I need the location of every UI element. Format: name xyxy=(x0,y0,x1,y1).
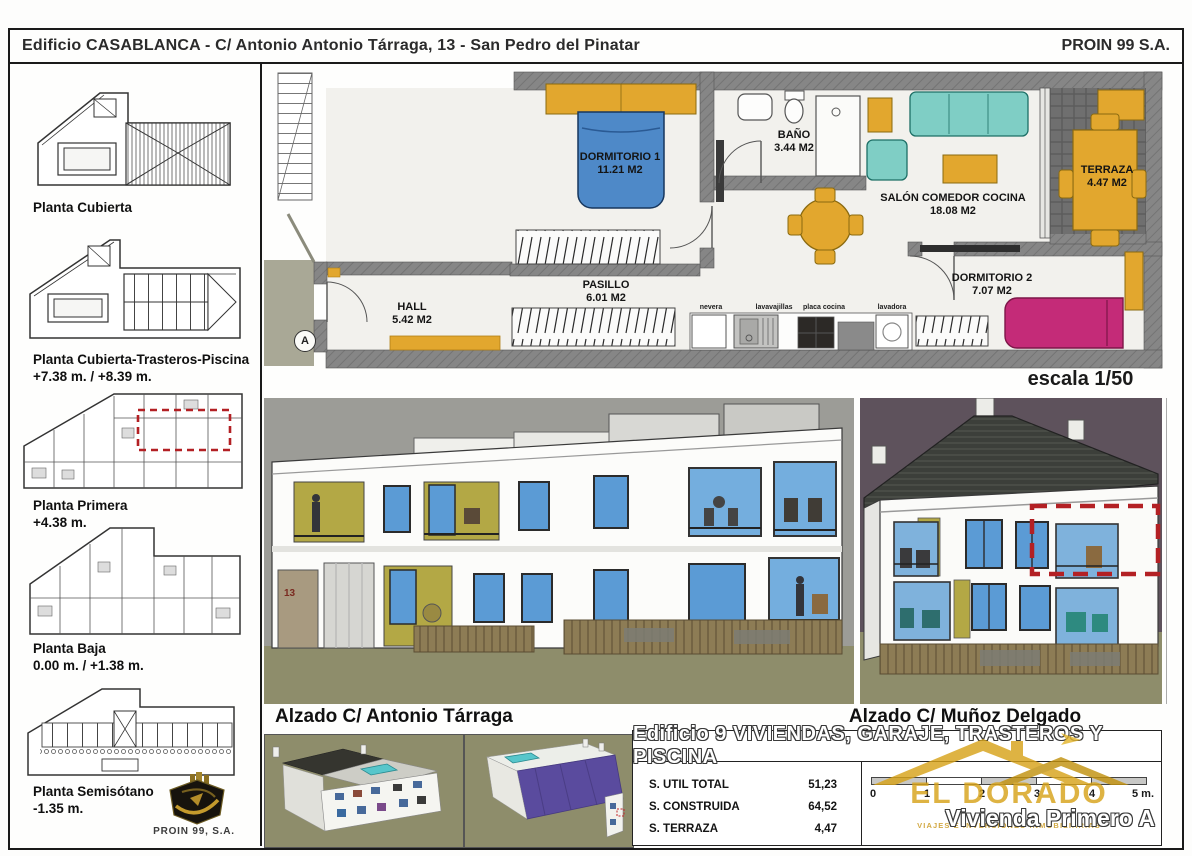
scale-tick: 0 xyxy=(870,788,876,800)
sidebar-item-planta-baja: Planta Baja xyxy=(33,641,106,656)
table-row-value: 51,23 xyxy=(773,779,837,791)
room-label-pasillo: PASILLO 6.01 M2 xyxy=(583,279,630,305)
sidebar-item-planta-primera: Planta Primera xyxy=(33,498,128,513)
table-row-label: S. TERRAZA xyxy=(649,823,718,835)
appliance-label-lavavajillas: lavavajillas xyxy=(756,304,793,311)
room-label-salon-comedor-cocina: SALÓN COMEDOR COCINA 18.08 M2 xyxy=(880,192,1025,218)
room-label-dormitorio-2: DORMITORIO 2 7.07 M2 xyxy=(952,272,1032,298)
table-row-label: S. CONSTRUIDA xyxy=(649,801,740,813)
sidebar-item-planta-baja-level: 0.00 m. / +1.38 m. xyxy=(33,658,144,673)
elevation-munoz-delgado xyxy=(860,398,1162,704)
elevation-antonio-tarraga: 13 xyxy=(264,398,854,704)
room-label-terraza: TERRAZA 4.47 M2 xyxy=(1081,164,1134,190)
planta-primera-thumbnail xyxy=(18,388,248,492)
margin-rule xyxy=(1166,398,1167,704)
scale-segment xyxy=(926,777,982,785)
planta-cubierta-thumbnail xyxy=(30,85,240,193)
title-block-header: Edificio CASABLANCA - C/ Antonio Antonio… xyxy=(10,30,1182,64)
document-page: Edificio CASABLANCA - C/ Antonio Antonio… xyxy=(0,0,1192,856)
scale-tick: 4 xyxy=(1089,788,1095,800)
scale-note: escala 1/50 xyxy=(998,368,1163,391)
table-row-value: 64,52 xyxy=(773,801,837,813)
table-row-value: 4,47 xyxy=(773,823,837,835)
sidebar-item-planta-cubierta-trasteros: Planta Cubierta-Trasteros-Piscina xyxy=(33,352,249,367)
scale-segment xyxy=(1091,777,1147,785)
room-label-bano: BAÑO 3.44 M2 xyxy=(774,129,814,155)
floor-plans-sidebar: Planta Cubierta Planta Cubierta-Trastero… xyxy=(10,64,262,846)
sidebar-item-planta-semisotano-level: -1.35 m. xyxy=(33,801,83,816)
proin-logo-text: PROIN 99, S.A. xyxy=(138,826,250,837)
room-label-dormitorio-1: DORMITORIO 1 11.21 M2 xyxy=(580,151,660,177)
render-aerial-view-1 xyxy=(264,734,464,848)
scale-tick: 5 m. xyxy=(1132,788,1154,800)
sheet-frame: Edificio CASABLANCA - C/ Antonio Antonio… xyxy=(8,28,1184,850)
sheet-title: Edificio CASABLANCA - C/ Antonio Antonio… xyxy=(22,37,640,55)
elevation-left-label: Alzado C/ Antonio Tárraga xyxy=(275,706,513,728)
graphic-scale-bar: 0 1 2 3 4 5 m. xyxy=(871,777,1151,803)
proin-logo-icon xyxy=(152,772,242,826)
apartment-floor-plan: DORMITORIO 1 11.21 M2 BAÑO 3.44 M2 SALÓN… xyxy=(264,64,1182,398)
appliance-label-nevera: nevera xyxy=(700,304,723,311)
project-title: Edificio 9 VIVIENDAS, GARAJE, TRASTEROS … xyxy=(633,731,1161,762)
table-row-label: S. UTIL TOTAL xyxy=(649,779,729,791)
sidebar-item-planta-semisotano: Planta Semisótano xyxy=(33,784,154,799)
appliance-label-placa-cocina: placa cocina xyxy=(803,304,845,311)
planta-baja-thumbnail xyxy=(24,522,246,638)
scale-tick: 1 xyxy=(924,788,930,800)
appliance-label-lavadora: lavadora xyxy=(878,304,907,311)
scale-segment xyxy=(871,777,927,785)
planta-cubierta-trasteros-piscina-thumbnail xyxy=(22,232,250,346)
summary-panel: Edificio 9 VIVIENDAS, GARAJE, TRASTEROS … xyxy=(632,730,1162,846)
scale-segment xyxy=(1036,777,1092,785)
planta-semisotano-thumbnail xyxy=(22,685,240,779)
door-number: 13 xyxy=(284,588,296,599)
scale-tick: 2 xyxy=(979,788,985,800)
sidebar-item-planta-cubierta-trasteros-level: +7.38 m. / +8.39 m. xyxy=(33,369,152,384)
section-marker-a: A xyxy=(294,330,316,352)
render-aerial-view-2 xyxy=(464,734,634,848)
sidebar-item-planta-cubierta: Planta Cubierta xyxy=(33,200,132,215)
unit-name: Vivienda Primero A xyxy=(903,805,1155,832)
room-label-hall: HALL 5.42 M2 xyxy=(392,301,432,327)
scale-segment xyxy=(981,777,1037,785)
scale-tick: 3 xyxy=(1034,788,1040,800)
floor-plan-drawing xyxy=(264,64,1182,398)
company-name: PROIN 99 S.A. xyxy=(1062,37,1170,55)
summary-divider xyxy=(861,762,862,845)
